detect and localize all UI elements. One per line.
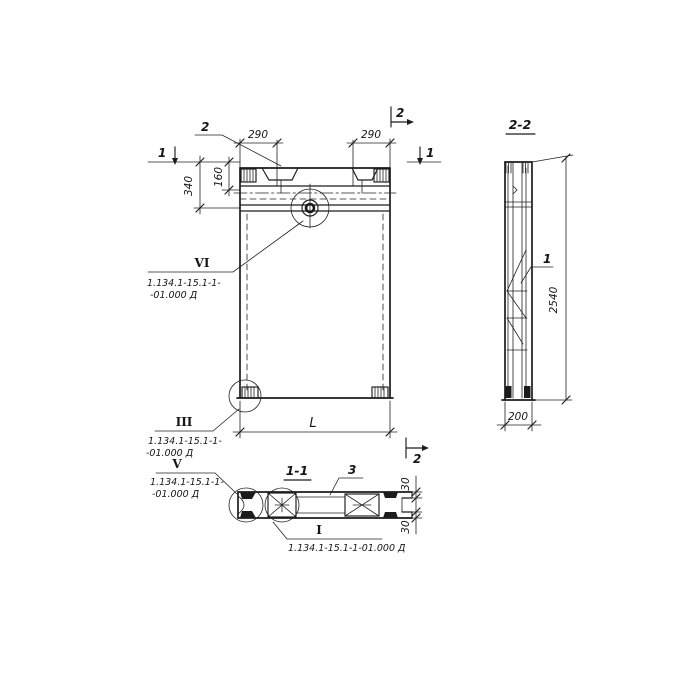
dim-160-value: 160 [213,167,225,187]
callout-vi-numeral: VI [194,256,210,270]
callout-iii-line2: -01.000 Д [146,448,193,459]
callout-v-line2: -01.000 Д [152,489,199,500]
plan-view-title-text: 1-1 [286,463,309,478]
plan-left-channel [229,488,263,522]
section-mark-2-bottom-label: 2 [413,452,421,466]
section-mark-1-right-label: 1 [426,146,434,160]
dim-L: L [233,401,397,438]
embed-plate-bottom-left [242,387,258,398]
callout-vi-line1: 1.134.1-15.1-1- [147,278,221,289]
side-outline [502,162,535,400]
callout-vi: VI 1.134.1-15.1-1- -01.000 Д [147,221,303,301]
callout-vi-line2: -01.000 Д [150,290,197,301]
plan-anchor-left [265,488,299,522]
dim-160: 160 [213,157,240,196]
callout-v-line1: 1.134.1-15.1-1- [150,477,224,488]
dim-200-value: 200 [508,411,528,423]
dim-200: 200 [497,402,541,431]
callout-iii-line1: 1.134.1-15.1-1- [148,436,222,447]
section-mark-2-bottom: 2 [406,438,429,466]
section-mark-2-top: 2 [391,106,414,127]
part-label-3-value: 3 [348,463,356,477]
plan-right-channel [383,492,412,518]
callout-i: I 1.134.1-15.1-1-01.000 Д [273,522,405,554]
section-mark-1-left-label: 1 [158,146,166,160]
plan-anchor-right [345,494,379,516]
dim-290-left-value: 290 [248,129,268,141]
side-bottom-feet [505,386,531,398]
part-label-3: 3 [330,463,363,495]
panel-hidden-edges [247,214,383,391]
plan-view-title: 1-1 [284,463,311,480]
dim-L-value: L [309,416,316,431]
plan-view: 1-1 3 [150,457,422,554]
callout-v-numeral: V [171,457,182,471]
side-view-title-text: 2-2 [509,117,532,132]
dim-30-group: 30 30 [400,476,422,534]
dim-30-bottom-value: 30 [400,520,412,534]
side-view: 2-2 [497,117,573,431]
callout-i-line1: 1.134.1-15.1-1-01.000 Д [288,543,405,554]
part-label-1-value: 1 [543,252,551,266]
technical-drawing-sheet: 290 290 340 160 L [0,0,700,700]
dim-290-right-value: 290 [361,129,381,141]
callout-iii: III 1.134.1-15.1-1- -01.000 Д [146,409,239,459]
callout-i-numeral: I [316,523,322,537]
side-view-title: 2-2 [506,117,535,134]
dim-2540-value: 2540 [548,286,560,313]
side-mid-lines [505,202,532,207]
top-recess-left [262,168,298,180]
front-view [229,168,396,412]
section-mark-2-top-label: 2 [396,106,404,120]
embed-plate-top-left [241,169,256,182]
side-top-hatch [506,163,528,194]
dim-2540: 2540 [532,154,573,404]
section-mark-1-right: 1 [407,146,441,165]
callout-iii-numeral: III [176,415,193,429]
callout-v: V 1.134.1-15.1-1- -01.000 Д [150,457,237,500]
side-keyway-detail [507,250,527,350]
dim-30-top-value: 30 [400,477,412,491]
dim-340-value: 340 [183,176,195,196]
panel-working-drawing: 290 290 340 160 L [0,0,700,700]
embed-plate-bottom-right [372,387,388,398]
hole-detail [291,184,329,228]
part-label-2-value: 2 [201,120,209,134]
